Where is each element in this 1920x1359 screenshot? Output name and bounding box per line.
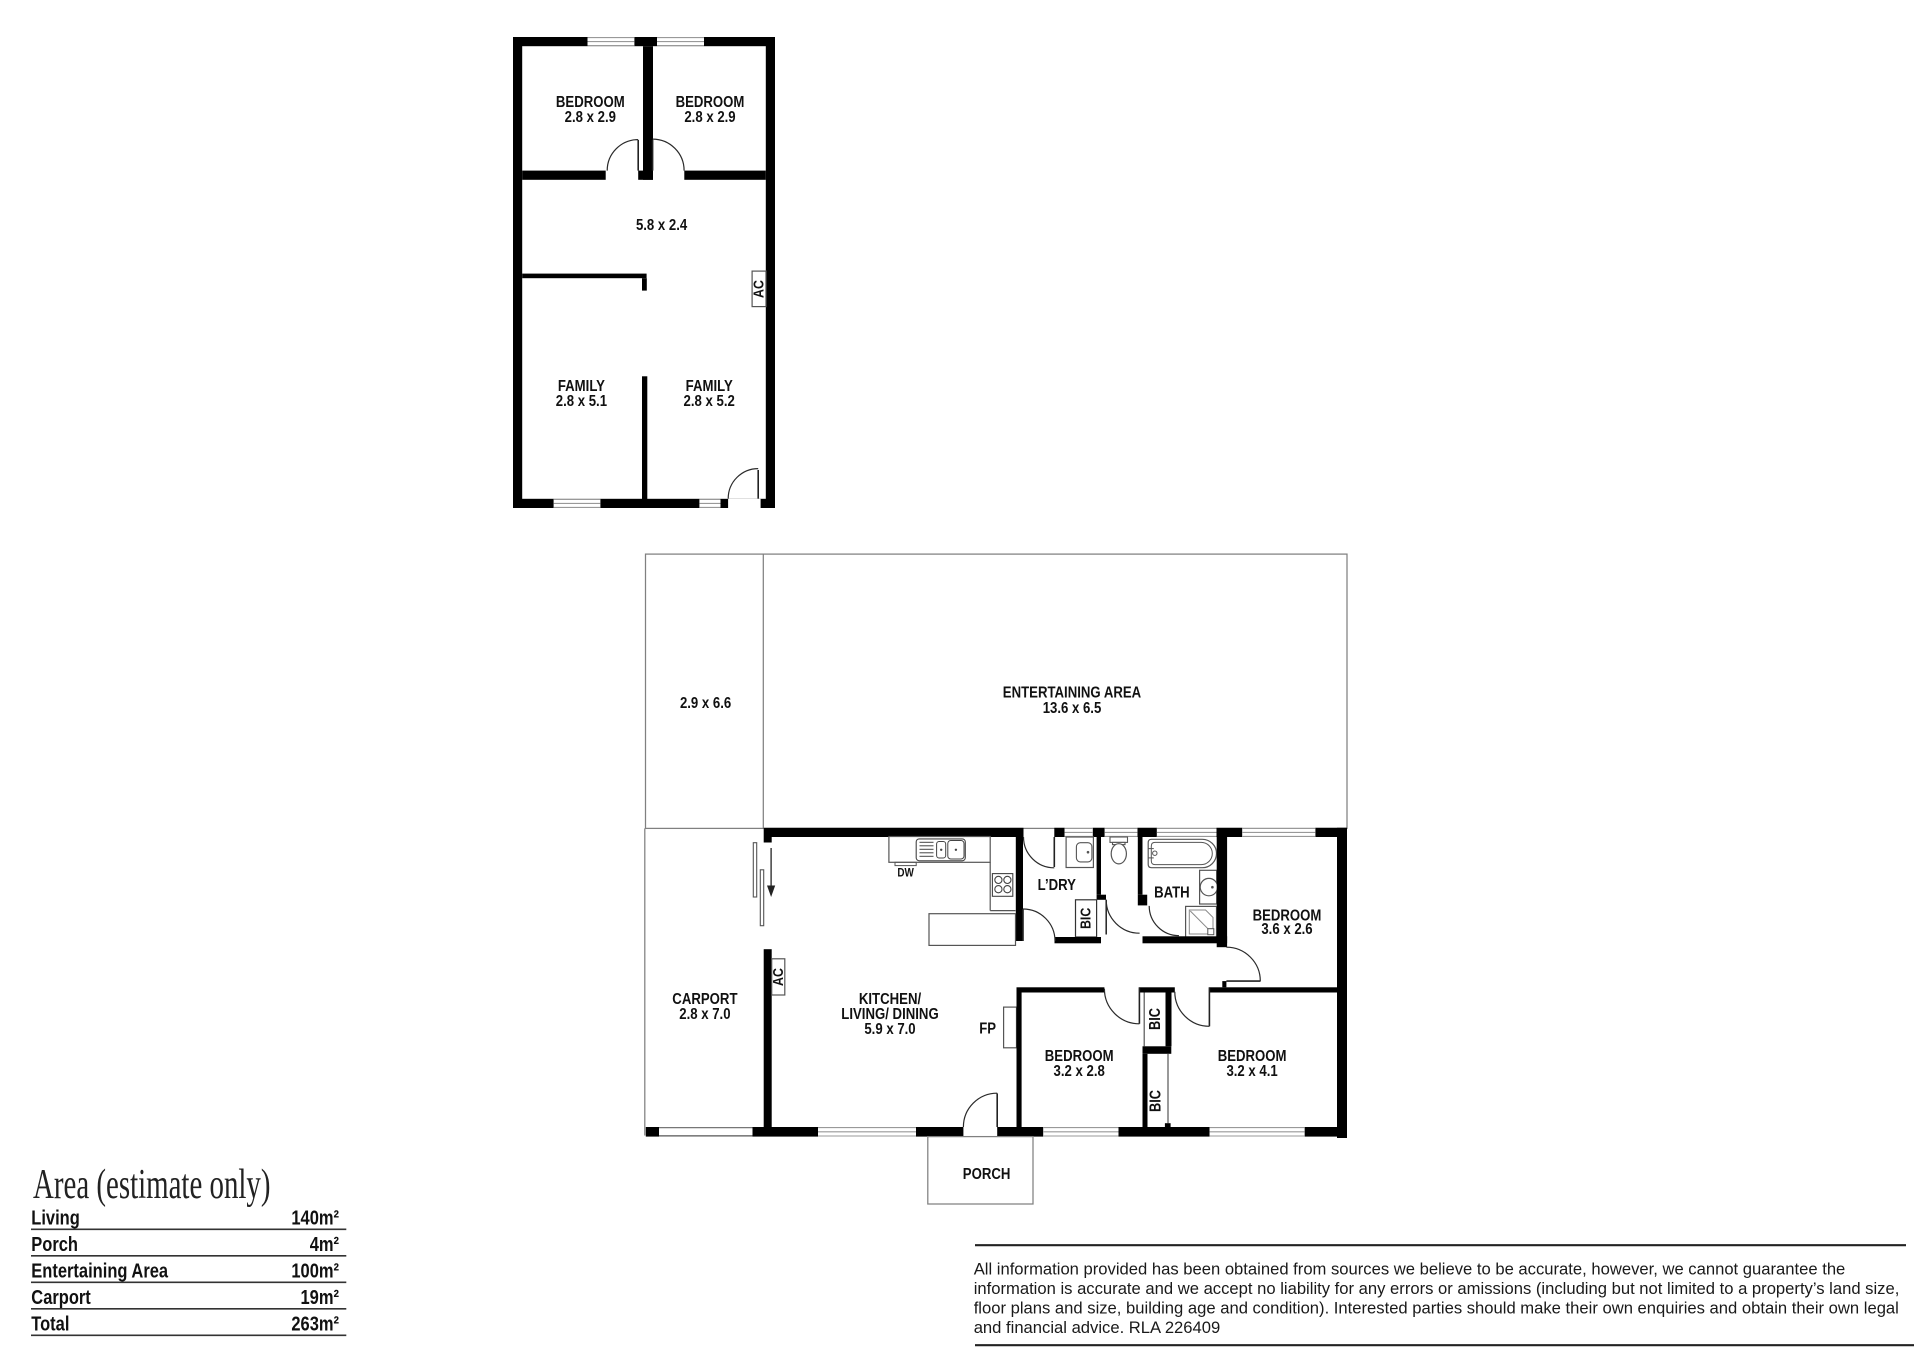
svg-text:BIC: BIC [1147,1090,1164,1112]
svg-text:4m²: 4m² [310,1234,340,1256]
svg-text:2.8 x 2.9: 2.8 x 2.9 [684,109,735,126]
svg-text:13.6 x 6.5: 13.6 x 6.5 [1043,700,1102,717]
svg-text:AC: AC [751,280,768,298]
svg-text:BIC: BIC [1147,1008,1164,1030]
svg-text:3.6 x 2.6: 3.6 x 2.6 [1261,921,1312,938]
svg-text:263m²: 263m² [291,1314,339,1336]
svg-text:BIC: BIC [1078,908,1095,929]
svg-text:AC: AC [770,968,787,986]
svg-text:and financial advice. RLA 2264: and financial advice. RLA 226409 [974,1318,1221,1337]
svg-text:Porch: Porch [31,1234,78,1256]
svg-text:140m²: 140m² [291,1208,339,1230]
svg-text:information is accurate and we: information is accurate and we accept no… [974,1279,1900,1298]
svg-text:Living: Living [31,1208,80,1230]
svg-text:3.2 x 2.8: 3.2 x 2.8 [1054,1063,1105,1080]
svg-text:5.9 x 7.0: 5.9 x 7.0 [864,1021,915,1038]
svg-text:Entertaining Area: Entertaining Area [31,1261,169,1283]
svg-text:2.8 x 5.1: 2.8 x 5.1 [556,393,607,410]
svg-text:Carport: Carport [31,1287,91,1309]
svg-text:ENTERTAINING AREA: ENTERTAINING AREA [1003,684,1142,701]
svg-text:19m²: 19m² [301,1287,340,1309]
svg-text:2.8 x 7.0: 2.8 x 7.0 [679,1006,730,1023]
svg-text:2.8 x 2.9: 2.8 x 2.9 [565,109,616,126]
svg-text:2.8 x 5.2: 2.8 x 5.2 [684,393,735,410]
svg-text:2.9 x 6.6: 2.9 x 6.6 [680,695,731,712]
svg-text:PORCH: PORCH [963,1166,1011,1183]
svg-text:Area (estimate only): Area (estimate only) [33,1162,271,1208]
svg-text:DW: DW [897,866,914,880]
svg-text:BATH: BATH [1154,884,1190,901]
svg-text:Total: Total [31,1314,69,1336]
svg-text:L’DRY: L’DRY [1038,877,1077,894]
svg-text:100m²: 100m² [291,1261,339,1283]
svg-text:All information provided has b: All information provided has been obtain… [974,1259,1846,1278]
svg-text:floor plans and size, building: floor plans and size, building age and c… [974,1299,1899,1318]
svg-text:3.2 x 4.1: 3.2 x 4.1 [1226,1063,1277,1080]
svg-text:5.8 x 2.4: 5.8 x 2.4 [636,217,687,234]
svg-text:FP: FP [979,1021,996,1038]
